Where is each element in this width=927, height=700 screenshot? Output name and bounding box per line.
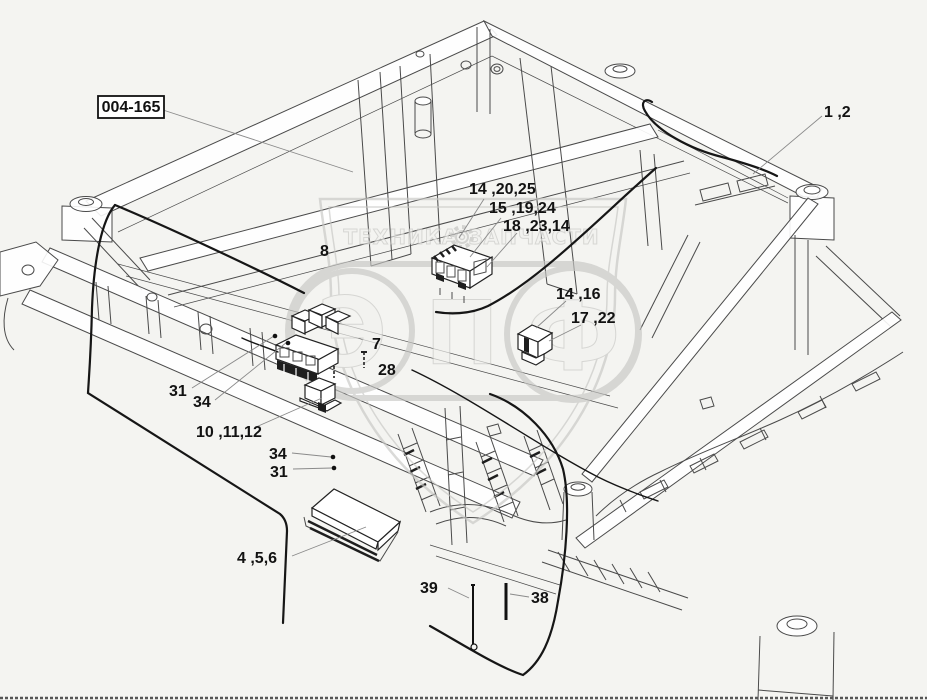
watermark-word-left: ТЕХНИКА [343, 225, 458, 249]
mast-pipe [415, 97, 431, 138]
frame-hole [700, 397, 714, 409]
callout-38: 38 [531, 590, 549, 607]
bottom-right-post [758, 616, 834, 700]
frame-hole [494, 67, 500, 72]
frame-rect-holes [695, 174, 775, 205]
callout-28: 28 [378, 362, 396, 379]
callout-34-b: 34 [269, 446, 287, 463]
callout-14-20-25: 14 ,20,25 [469, 181, 536, 198]
callout-14-16: 14 ,16 [556, 286, 601, 303]
frame-hole [491, 64, 503, 74]
callout-34-a: 34 [193, 394, 211, 411]
watermark-letter-p: П [425, 282, 499, 385]
frame-beam [484, 21, 822, 202]
frame-edge [430, 545, 560, 585]
callout-17-22: 17 ,22 [571, 310, 616, 327]
callout-15-19-24: 15 ,19,24 [489, 200, 556, 217]
callout-8: 8 [320, 243, 329, 260]
callout-31-a: 31 [169, 383, 187, 400]
callout-39: 39 [420, 580, 438, 597]
frame-edge [436, 556, 556, 594]
callout-ref: 004-165 [102, 99, 161, 116]
callout-4-5-6: 4 ,5,6 [237, 550, 277, 567]
callout-18-23-14: 18 ,23,14 [503, 218, 570, 235]
callout-10-11-12: 10 ,11,12 [196, 424, 262, 441]
watermark-letter-e: Э [317, 277, 387, 389]
parts-diagram-canvas: Э П Ф ТЕХНИКА ЗАПЧАСТИ [0, 0, 927, 700]
frame-hole [487, 424, 501, 436]
frame-hole [461, 61, 471, 69]
cover-box [304, 489, 400, 561]
corner-post-far [605, 64, 635, 78]
callout-7: 7 [372, 336, 381, 353]
gear-icon [452, 227, 472, 247]
pin-39 [471, 584, 477, 650]
callout-1-2: 1 ,2 [824, 104, 851, 121]
callout-31-b: 31 [270, 464, 288, 481]
ref-box: 004-165 [98, 96, 164, 118]
diagram-svg: Э П Ф ТЕХНИКА ЗАПЧАСТИ [0, 0, 927, 700]
